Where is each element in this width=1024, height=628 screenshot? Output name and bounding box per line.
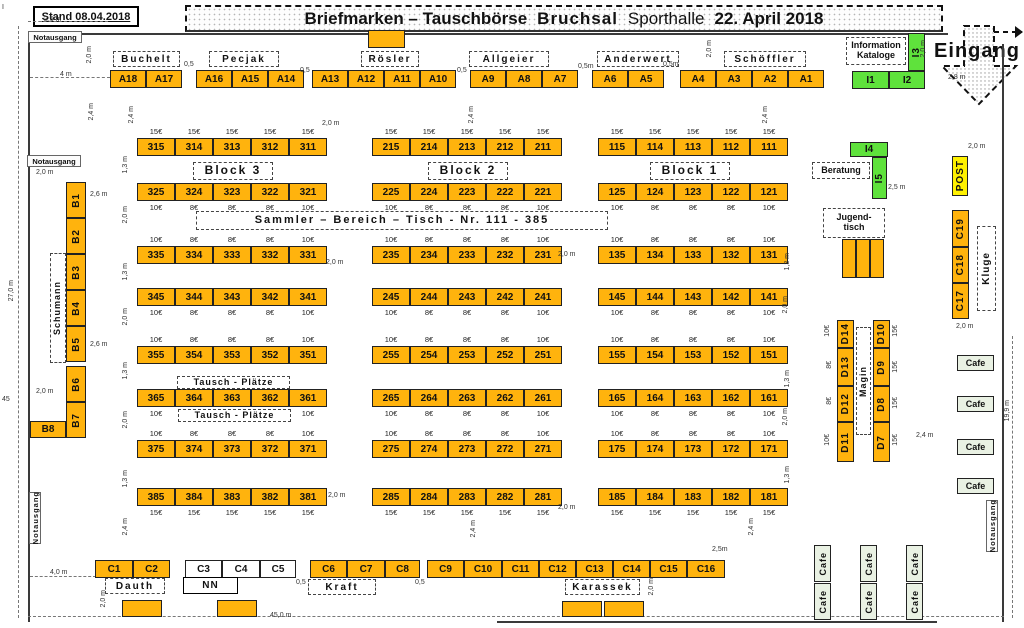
price-tag: 8€ [266,335,274,344]
label-buchelt: Buchelt [113,51,180,67]
table-285: 285 [372,488,410,506]
price-tag: 10€ [150,308,163,317]
dimension-label: 2,4 m [122,518,129,536]
table-c13: C13 [576,560,613,578]
price-tag: 15€ [537,127,550,136]
entrance-arrow-icon [936,24,1024,110]
price-tag: 8€ [651,203,659,212]
table-321: 321 [289,183,327,201]
price-tag: 8€ [501,409,509,418]
price-tag: 15€ [226,127,239,136]
price-tag: 15€ [226,508,239,517]
price-tag: 10€ [763,203,776,212]
label-tausch-pl-tze: Tausch - Plätze [178,409,291,422]
price-tag: 15€ [687,127,700,136]
price-tag: 8€ [727,308,735,317]
table-331: 331 [289,246,327,264]
dimension-label: 0,5 [296,579,306,586]
table-382: 382 [251,488,289,506]
table-163: 163 [674,389,712,407]
price-tag: 8€ [501,429,509,438]
table-335: 335 [137,246,175,264]
wall [1002,44,1004,622]
dimension-label: 2,0 m [558,251,576,258]
label-block-2: Block 2 [428,162,508,180]
table-271: 271 [524,440,562,458]
entrance-label: Eingang [930,40,1024,63]
price-tag: 8€ [689,308,697,317]
table-c7: C7 [347,560,385,578]
price-tag: 10€ [150,335,163,344]
dimension-label: 1,3 m [122,156,129,174]
table-234: 234 [410,246,448,264]
price-tag: 8€ [501,335,509,344]
price-tag: 10€ [537,409,550,418]
table-283: 283 [448,488,486,506]
dimension-label: 19,9 m [1004,400,1011,421]
cafe-table: Cafe [860,545,877,582]
table-373: 373 [213,440,251,458]
table-211: 211 [524,138,562,156]
price-tag: 15€ [725,508,738,517]
table-a10: A10 [420,70,456,88]
emergency-exit-label: Notausgang [986,500,998,552]
price-tag: 15€ [461,127,474,136]
dimension-label: 1,3 m [122,263,129,281]
table-d8: D8 [873,386,890,422]
price-tag: 15€ [264,127,277,136]
price-tag: 8€ [425,335,433,344]
price-tag: 8€ [689,335,697,344]
table-i4: I4 [850,142,888,157]
table-b7: B7 [66,402,86,438]
price-tag: 8€ [425,235,433,244]
price-tag: 8€ [689,203,697,212]
table-153: 153 [674,346,712,364]
table-273: 273 [448,440,486,458]
price-tag: 8€ [463,409,471,418]
table-255: 255 [372,346,410,364]
table-c19: C19 [952,210,969,247]
dimension-label: 1,3 m [784,466,791,484]
price-tag: 10€ [150,409,163,418]
price-tag: 8€ [190,235,198,244]
price-tag: 8€ [425,308,433,317]
dimension-label: 2,0 m [782,296,789,314]
table-344: 344 [175,288,213,306]
table-d7: D7 [873,422,890,462]
table-363: 363 [213,389,251,407]
table-354: 354 [175,346,213,364]
table-c11: C11 [502,560,539,578]
table-334: 334 [175,246,213,264]
price-tag: 15€ [611,127,624,136]
table-212: 212 [486,138,524,156]
table-214: 214 [410,138,448,156]
price-tag: 15€ [461,508,474,517]
table-265: 265 [372,389,410,407]
floor-plan: Stand 08.04.2018 Briefmarken – Tauschbör… [0,0,1024,628]
table-374: 374 [175,440,213,458]
cafe-table: Cafe [814,545,831,582]
table-364: 364 [175,389,213,407]
table-183: 183 [674,488,712,506]
table-181: 181 [750,488,788,506]
dimension-label: 1,3 m [122,470,129,488]
dimension-line [18,26,19,618]
dimension-label: 2,0 m [86,46,93,64]
table-post: POST [952,156,968,196]
table-262: 262 [486,389,524,407]
price-tag: 8€ [727,409,735,418]
price-tag: 10€ [537,235,550,244]
price-tag: 10€ [611,203,624,212]
price-tag: 15€ [150,508,163,517]
dimension-label: 1,3 m [784,370,791,388]
table-261: 261 [524,389,562,407]
price-tag: 10€ [385,429,398,438]
table-174: 174 [636,440,674,458]
price-tag: 10€ [302,429,315,438]
price-tag: 8€ [228,308,236,317]
dimension-label: 2,0 m [706,40,713,58]
dimension-label: 2,5m [712,546,728,553]
table-121: 121 [750,183,788,201]
table-125: 125 [598,183,636,201]
table-143: 143 [674,288,712,306]
table-244: 244 [410,288,448,306]
price-tag: 10€ [537,335,550,344]
dimension-label: 2,0 m [36,169,54,176]
table-333: 333 [213,246,251,264]
dimension-label: 2,4 m [748,518,755,536]
dimension-label: 2,4 m [916,432,934,439]
cafe-table: Cafe [957,439,994,455]
table-b1: B1 [66,182,86,218]
cafe-table: Cafe [957,355,994,371]
price-tag: 10€ [150,235,163,244]
emergency-exit-label: Notausgang [29,492,41,544]
table-281: 281 [524,488,562,506]
dimension-label: 0,5m [663,61,679,68]
table-d10: D10 [873,320,890,348]
title-city: Bruchsal [537,9,618,29]
table-112: 112 [712,138,750,156]
price-tag: 10€ [385,335,398,344]
price-tag: 8€ [266,429,274,438]
dimension-label: 45,0 m [270,612,291,619]
table-213: 213 [448,138,486,156]
table-243: 243 [448,288,486,306]
table-blank [856,239,870,278]
table-c4: C4 [222,560,260,578]
table-a18: A18 [110,70,146,88]
price-tag: 8€ [425,409,433,418]
table-284: 284 [410,488,448,506]
table-a15: A15 [232,70,268,88]
table-c6: C6 [310,560,347,578]
wall [28,33,948,35]
dimension-label: 2,0 m [122,411,129,429]
table-i2: I2 [889,71,925,89]
price-tag: 15€ [423,508,436,517]
price-tag: 10€ [763,308,776,317]
table-a5: A5 [628,70,664,88]
table-a12: A12 [348,70,384,88]
dimension-label: 2,0 m [100,590,107,608]
table-235: 235 [372,246,410,264]
table-275: 275 [372,440,410,458]
price-tag: 8€ [463,429,471,438]
price-tag: 8€ [266,235,274,244]
table-d11: D11 [837,422,854,462]
table-361: 361 [289,389,327,407]
table-365: 365 [137,389,175,407]
table-a16: A16 [196,70,232,88]
table-385: 385 [137,488,175,506]
dimension-line [28,21,108,22]
table-114: 114 [636,138,674,156]
price-tag: 15€ [763,127,776,136]
table-a17: A17 [146,70,182,88]
table-161: 161 [750,389,788,407]
price-tag: 15€ [150,127,163,136]
table-d14: D14 [837,320,854,348]
table-233: 233 [448,246,486,264]
price-tag: 15€ [892,434,899,446]
table-a2: A2 [752,70,788,88]
table-d9: D9 [873,348,890,386]
price-tag: 15€ [423,127,436,136]
title-venue: Sporthalle [628,9,705,29]
table-111: 111 [750,138,788,156]
table-154: 154 [636,346,674,364]
table-282: 282 [486,488,524,506]
table-225: 225 [372,183,410,201]
title-event: Briefmarken – Tauschbörse [305,9,528,29]
table-372: 372 [251,440,289,458]
dimension-label: 2,6 m [90,191,108,198]
table-263: 263 [448,389,486,407]
dimension-label: 2,4 m [468,106,475,124]
table-113: 113 [674,138,712,156]
table-231: 231 [524,246,562,264]
dimension-label: 2,5 m [888,184,906,191]
price-tag: 10€ [385,409,398,418]
cafe-table: Cafe [957,396,994,412]
table-342: 342 [251,288,289,306]
price-tag: 8€ [266,308,274,317]
price-tag: 8€ [501,235,509,244]
table-314: 314 [175,138,213,156]
table-a1: A1 [788,70,824,88]
table-251: 251 [524,346,562,364]
dimension-label: 2,0 m [326,259,344,266]
dimension-label: 2,0 m [782,408,789,426]
table-c16: C16 [687,560,725,578]
table-165: 165 [598,389,636,407]
table-blank [122,600,162,617]
price-tag: 8€ [651,235,659,244]
table-264: 264 [410,389,448,407]
table-c18: C18 [952,247,969,283]
table-173: 173 [674,440,712,458]
dimension-label: 2,4 m [470,520,477,538]
price-tag: 15€ [499,127,512,136]
table-blank [217,600,257,617]
table-184: 184 [636,488,674,506]
dimension-label: 0,5 [415,579,425,586]
label-block-3: Block 3 [193,162,273,180]
table-232: 232 [486,246,524,264]
table-384: 384 [175,488,213,506]
price-tag: 15€ [302,127,315,136]
table-272: 272 [486,440,524,458]
table-123: 123 [674,183,712,201]
price-tag: 10€ [302,235,315,244]
dimension-label: 1,3 m [784,253,791,271]
dimension-label: 2,0 m [322,120,340,127]
table-blank [368,30,405,48]
table-152: 152 [712,346,750,364]
table-144: 144 [636,288,674,306]
price-tag: 10€ [824,434,831,446]
table-i5: I5 [872,157,887,199]
table-blank [842,239,856,278]
cafe-table: Cafe [814,583,831,620]
price-tag: 8€ [190,429,198,438]
price-tag: 8€ [190,308,198,317]
dimension-label: 2,0 m [920,40,927,58]
price-tag: 8€ [826,397,833,405]
price-tag: 15€ [892,325,899,337]
dimension-label: 45 [2,396,10,403]
table-a6: A6 [592,70,628,88]
label-nn: NN [183,577,238,594]
title-banner: Briefmarken – Tauschbörse Bruchsal Sport… [185,5,943,32]
table-124: 124 [636,183,674,201]
price-tag: 10€ [824,325,831,337]
dimension-label: 4 m [60,71,72,78]
table-353: 353 [213,346,251,364]
price-tag: 10€ [385,235,398,244]
dimension-label: 2,0 m [648,578,655,596]
table-315: 315 [137,138,175,156]
table-324: 324 [175,183,213,201]
table-182: 182 [712,488,750,506]
table-142: 142 [712,288,750,306]
price-tag: 8€ [689,409,697,418]
label-jugend-tisch: Jugend- tisch [823,208,885,238]
price-tag: 15€ [611,508,624,517]
label-beratung: Beratung [812,162,870,179]
table-c5: C5 [260,560,296,578]
price-tag: 8€ [651,409,659,418]
price-tag: 10€ [302,409,315,418]
table-a7: A7 [542,70,578,88]
price-tag: 15€ [264,508,277,517]
table-185: 185 [598,488,636,506]
price-tag: 10€ [537,308,550,317]
table-133: 133 [674,246,712,264]
dimension-label: 2,0 m [122,206,129,224]
table-a9: A9 [470,70,506,88]
dimension-label: 2,8 m [948,74,966,81]
price-tag: 10€ [763,429,776,438]
price-tag: 8€ [727,429,735,438]
price-tag: 15€ [499,508,512,517]
dimension-line [30,576,96,577]
dimension-label: 2,0 m [956,323,974,330]
price-tag: 10€ [611,308,624,317]
price-tag: 15€ [302,508,315,517]
table-311: 311 [289,138,327,156]
table-c10: C10 [464,560,502,578]
dimension-label: 0,5 [457,67,467,74]
price-tag: 8€ [651,429,659,438]
dimension-label: 2,4 m [88,103,95,121]
emergency-exit-label: Notausgang [28,31,82,43]
price-tag: 8€ [463,335,471,344]
table-351: 351 [289,346,327,364]
table-343: 343 [213,288,251,306]
label-pecjak: Pecjak [209,51,279,67]
price-tag: 8€ [651,308,659,317]
table-325: 325 [137,183,175,201]
table-b4: B4 [66,290,86,326]
table-c8: C8 [385,560,420,578]
label-information-kataloge: Information Kataloge [846,37,906,65]
price-tag: 8€ [689,235,697,244]
table-151: 151 [750,346,788,364]
dimension-label: 1,3 m [122,362,129,380]
table-162: 162 [712,389,750,407]
table-254: 254 [410,346,448,364]
dimension-label: 2,4 m [128,106,135,124]
table-215: 215 [372,138,410,156]
price-tag: 10€ [763,235,776,244]
table-c1: C1 [95,560,133,578]
table-252: 252 [486,346,524,364]
dimension-label: 27,0 m [8,280,15,301]
table-b6: B6 [66,366,86,402]
price-tag: 8€ [689,429,697,438]
table-323: 323 [213,183,251,201]
table-383: 383 [213,488,251,506]
price-tag: 10€ [150,429,163,438]
price-tag: 10€ [537,429,550,438]
table-c14: C14 [613,560,650,578]
table-222: 222 [486,183,524,201]
label-block-1: Block 1 [650,162,730,180]
table-355: 355 [137,346,175,364]
table-b5: B5 [66,326,86,362]
table-164: 164 [636,389,674,407]
price-tag: 8€ [727,203,735,212]
dimension-label: 0,5 [184,61,194,68]
label-sch-ffler: Schöffler [724,51,806,67]
table-blank [870,239,884,278]
price-tag: 8€ [727,335,735,344]
price-tag: 10€ [302,308,315,317]
table-a4: A4 [680,70,716,88]
table-375: 375 [137,440,175,458]
price-tag: 10€ [150,203,163,212]
table-345: 345 [137,288,175,306]
price-tag: 8€ [190,335,198,344]
table-313: 313 [213,138,251,156]
table-a14: A14 [268,70,304,88]
